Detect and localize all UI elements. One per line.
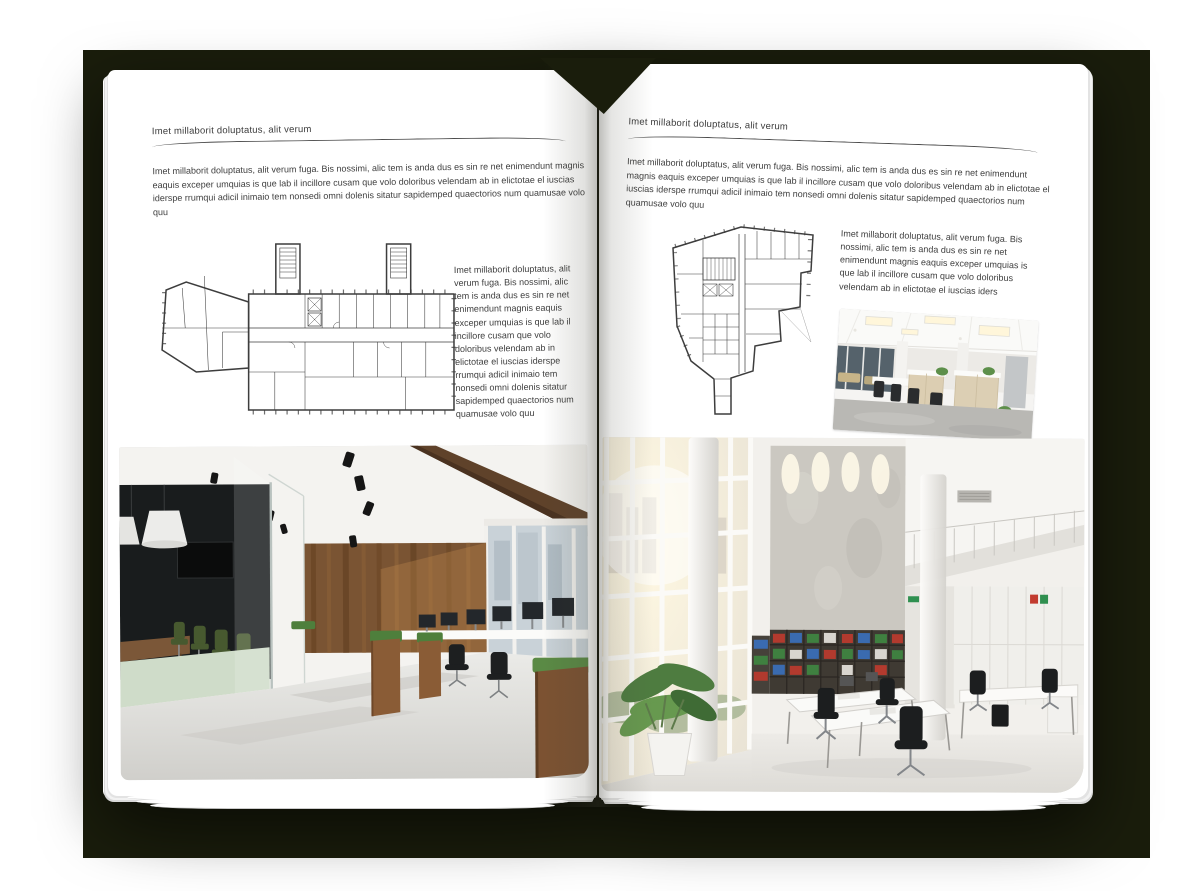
page-right-running-header: Imet millaborit doluptatus, alit verum bbox=[628, 116, 788, 132]
page-left-sheet-edges bbox=[123, 795, 583, 807]
page-right-header-rule bbox=[628, 134, 1038, 158]
page-left-intro-paragraph: Imet millaborit doluptatus, alit verum f… bbox=[152, 159, 591, 219]
page-left-running-header: Imet millaborit doluptatus, alit verum bbox=[152, 124, 312, 137]
page-left-side-column: Imet millaborit doluptatus, alit verum f… bbox=[454, 262, 578, 421]
page-right-side-column: Imet millaborit doluptatus, alit verum f… bbox=[839, 227, 1039, 299]
page-left-header-rule bbox=[152, 136, 566, 152]
open-magazine-spread: Imet millaborit doluptatus, alit verum I… bbox=[108, 62, 1088, 807]
floor-plan-wide-building bbox=[152, 232, 456, 430]
floor-plan-triangular-building bbox=[645, 214, 827, 422]
photo-open-office-workstations bbox=[833, 309, 1039, 442]
page-right: Imet millaborit doluptatus, alit verum I… bbox=[599, 64, 1088, 798]
page-left: Imet millaborit doluptatus, alit verum I… bbox=[108, 70, 597, 796]
photo-double-height-white-office bbox=[601, 437, 1084, 793]
photo-loft-office-wood-glass bbox=[119, 445, 589, 780]
magazine-mockup-stage: Imet millaborit doluptatus, alit verum I… bbox=[0, 0, 1200, 891]
